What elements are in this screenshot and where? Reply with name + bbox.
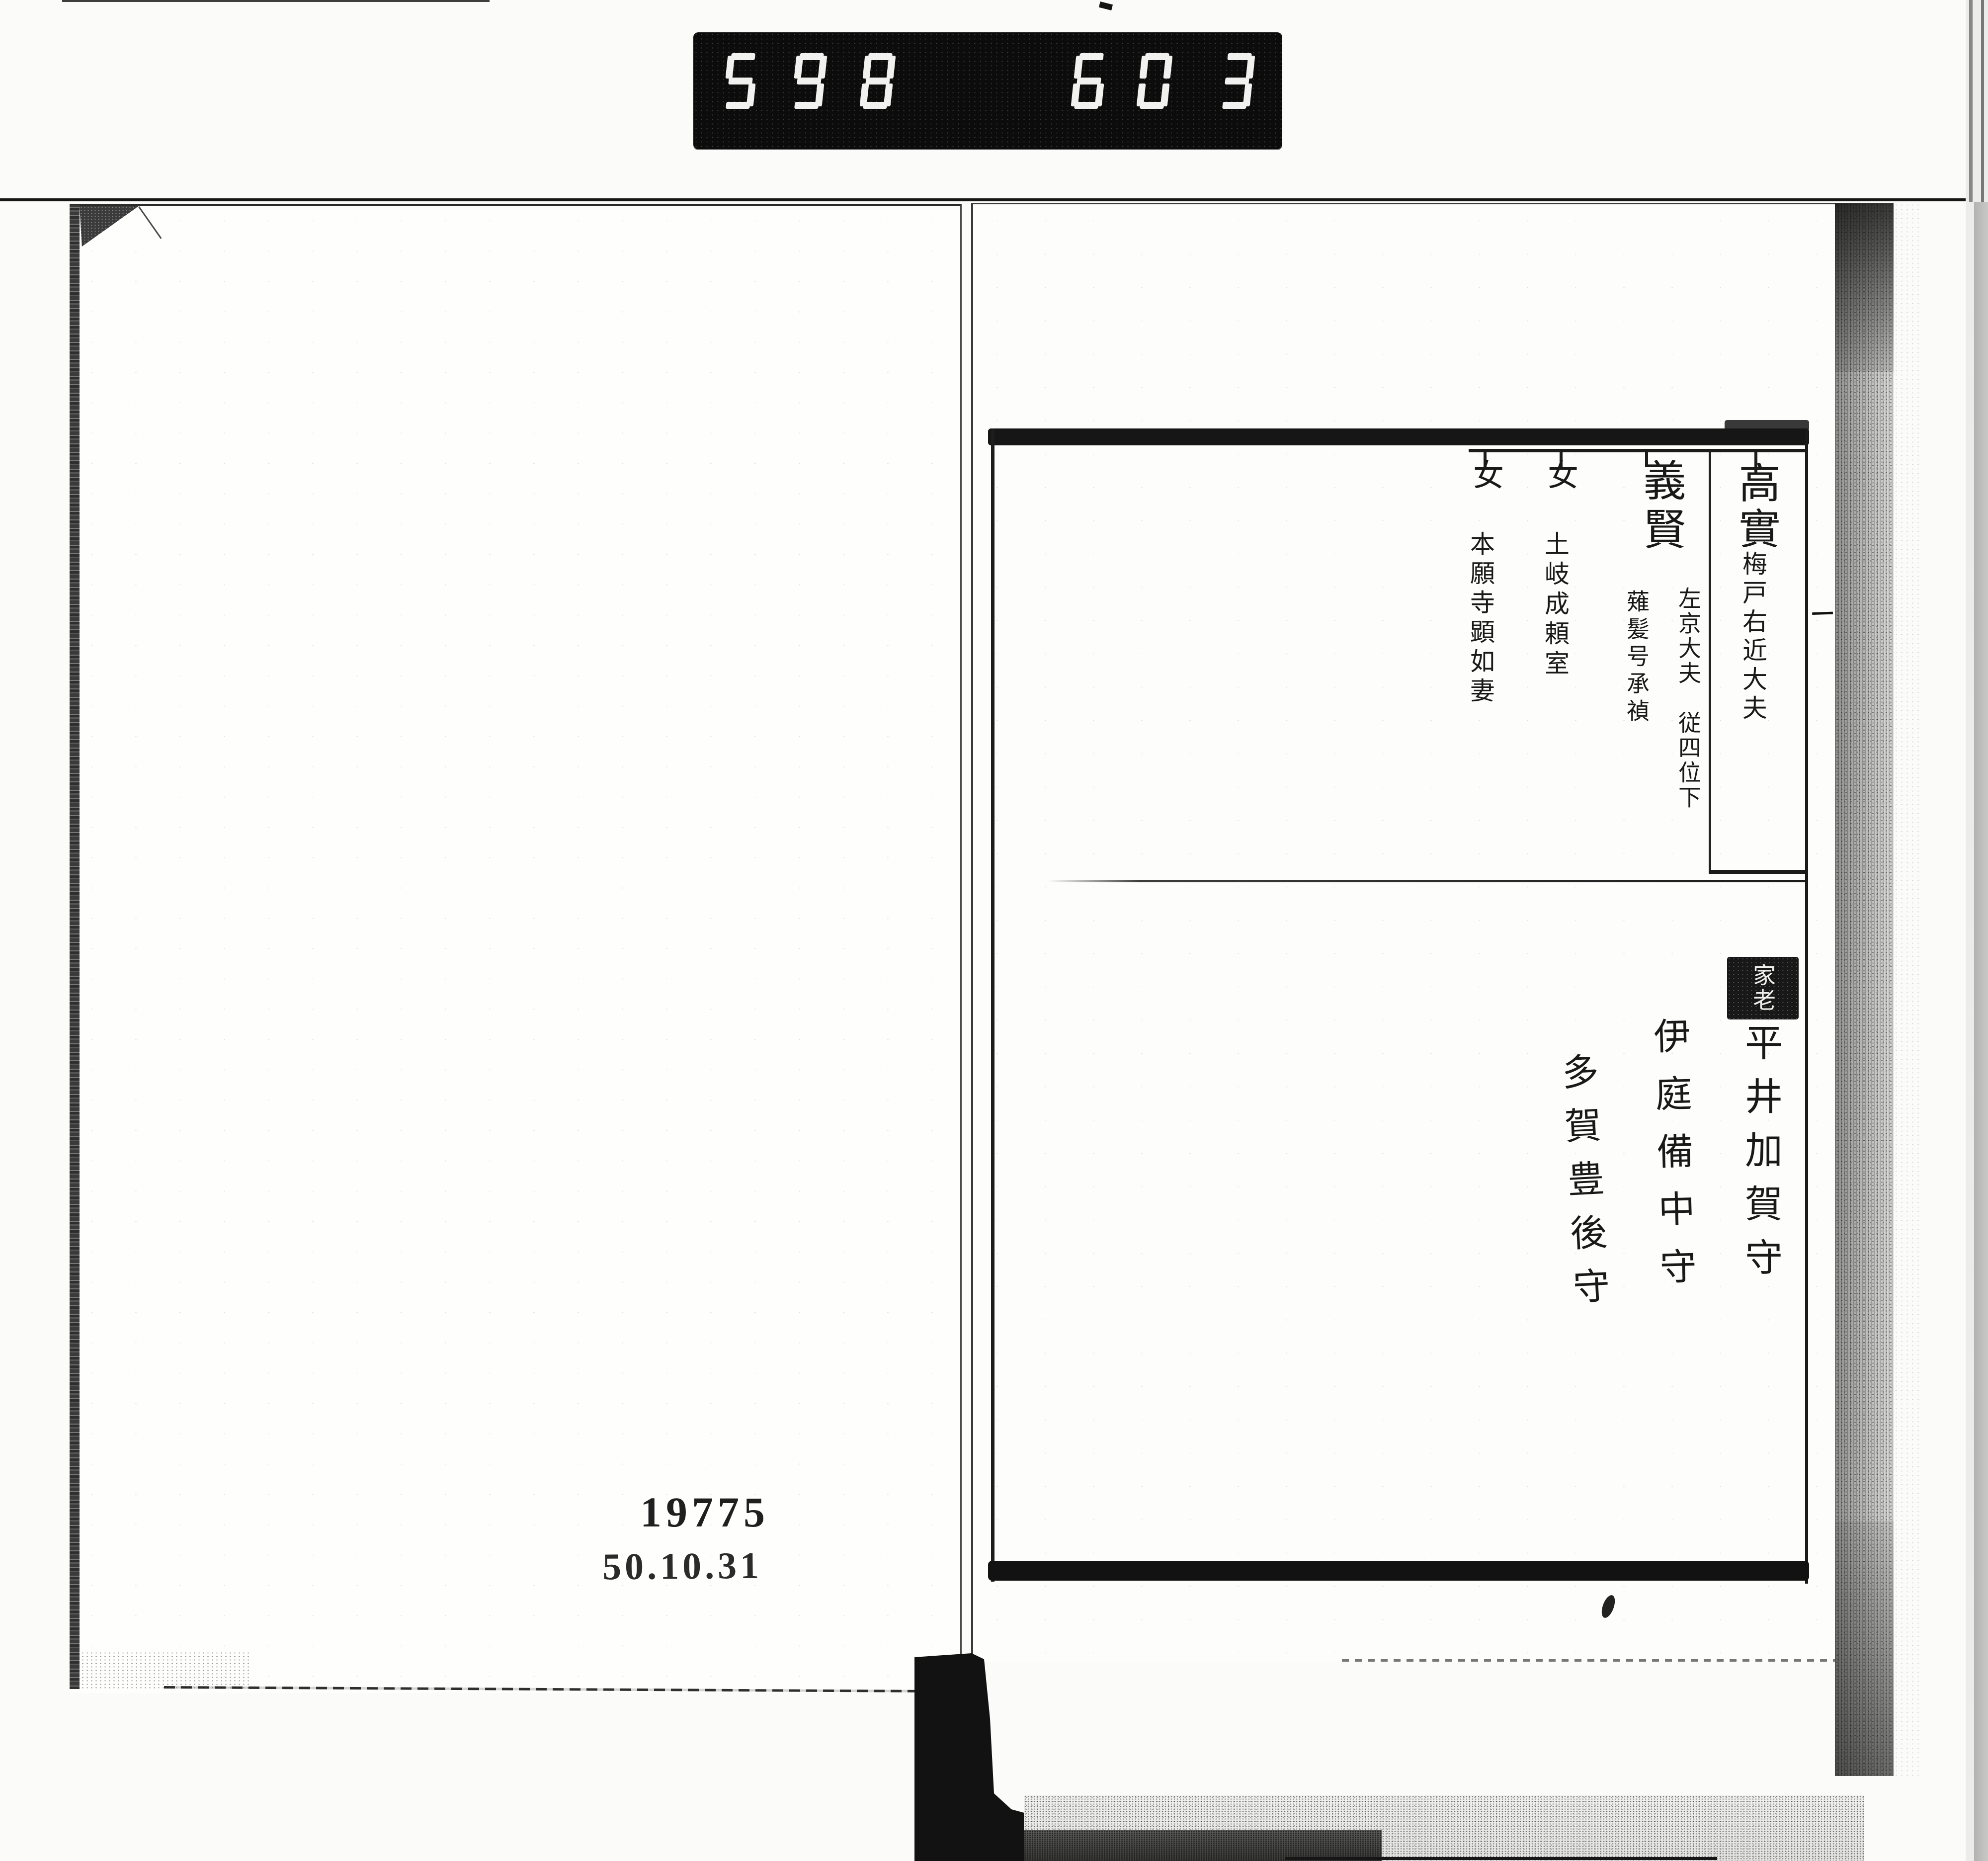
left-page-corner-speckle: [81, 1651, 249, 1690]
retainer-name-hirai: 平井加賀守: [1741, 1023, 1779, 1291]
seven-segment-digit: [859, 53, 896, 109]
seven-segment-digit: [791, 53, 828, 109]
takazane-cell-bottom-border: [1709, 870, 1808, 874]
child-name-daughter-2: 女: [1470, 459, 1501, 490]
spread-top-rule: [0, 198, 1988, 201]
child-name-takazane: 高實: [1736, 461, 1777, 553]
film-edge-band: [1974, 202, 1988, 1861]
child-marriage-note-daughter-2: 本願寺顕如妻: [1468, 531, 1493, 707]
child-name-yoshikata: 義賢: [1639, 458, 1682, 556]
binding-gutter-shadow-bottom: [1835, 1521, 1894, 1776]
film-edge-line: [1969, 0, 1973, 202]
takazane-cell-left-border: [1709, 450, 1711, 872]
seven-segment-digit: [722, 53, 759, 109]
bottom-page-edge-line: [1285, 1857, 1717, 1860]
scanned-genealogy-spread: 19775 50.10.31 高實 梅戸右近大夫 義賢 左京大夫 従四位下 薙髪…: [0, 0, 1988, 1861]
underlying-page-edge: [1342, 1659, 1859, 1662]
section-divider-line: [1048, 880, 1808, 882]
binding-gutter-shadow-top: [1835, 203, 1894, 372]
frame-counter-label: [693, 32, 1282, 149]
accession-number-stamp: 19775: [640, 1487, 769, 1537]
seven-segment-digit: [1071, 53, 1107, 109]
scan-top-edge-tick: [1099, 1, 1113, 10]
left-page: [70, 204, 962, 1693]
child-name-daughter-1: 女: [1545, 459, 1575, 490]
page-edge-mark: 一: [1811, 596, 1834, 628]
table-top-border-bump: [1725, 420, 1809, 431]
counter-digits-right: [1074, 53, 1252, 109]
film-edge-line: [1981, 0, 1984, 202]
binding-gutter-fade: [1894, 203, 1919, 1776]
table-top-border: [988, 428, 1809, 445]
child-rank-note-yoshikata: 左京大夫 従四位下: [1677, 587, 1700, 810]
child-title-note-takazane: 梅戸右近大夫: [1740, 551, 1765, 724]
table-right-border: [1805, 428, 1808, 1584]
right-page: [973, 203, 1836, 1662]
table-left-border: [991, 428, 994, 1582]
karo-seal: 家老: [1727, 957, 1799, 1019]
seven-segment-digit: [1136, 53, 1173, 109]
child-marriage-note-daughter-1: 土岐成頼室: [1543, 531, 1568, 680]
retainer-name-iba: 伊庭備中守: [1650, 1016, 1694, 1306]
bottom-speckle-band-dark: [1024, 1830, 1382, 1861]
left-page-edge-strip: [70, 205, 80, 1689]
karo-seal-label: 家老: [1751, 963, 1774, 1013]
scan-top-edge-line: [62, 0, 490, 2]
counter-digits-left: [725, 53, 893, 109]
date-stamp: 50.10.31: [602, 1544, 763, 1589]
table-bottom-border: [988, 1561, 1809, 1581]
seven-segment-digit: [1219, 53, 1255, 109]
child-tonsure-note-yoshikata: 薙髪号承禎: [1625, 590, 1648, 726]
